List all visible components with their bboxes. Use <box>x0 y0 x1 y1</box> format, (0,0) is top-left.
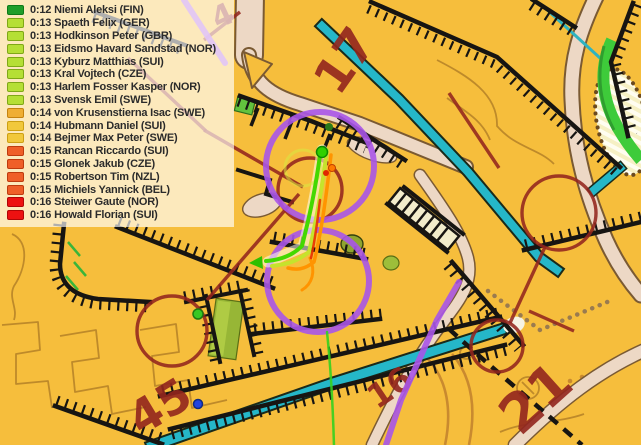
leaderboard-row[interactable]: 0:16 Howald Florian (SUI) <box>0 209 234 222</box>
runner-color-swatch <box>7 44 24 54</box>
runner-label: 0:15 Rancan Riccardo (SUI) <box>30 145 168 157</box>
leaderboard-row[interactable]: 0:16 Steiwer Gaute (NOR) <box>0 196 234 209</box>
runner-color-swatch <box>7 57 24 67</box>
runner-label: 0:14 Hubmann Daniel (SUI) <box>30 120 166 132</box>
runner-color-swatch <box>7 95 24 105</box>
runner-color-swatch <box>7 121 24 131</box>
leaderboard-row[interactable]: 0:14 von Krusenstierna Isac (SWE) <box>0 106 234 119</box>
runner-label: 0:14 von Krusenstierna Isac (SWE) <box>30 107 205 119</box>
runner-label: 0:13 Svensk Emil (SWE) <box>30 94 151 106</box>
leaderboard-row[interactable]: 0:13 Svensk Emil (SWE) <box>0 94 234 107</box>
leaderboard-row[interactable]: 0:15 Robertson Tim (NZL) <box>0 170 234 183</box>
runner-color-swatch <box>7 82 24 92</box>
leaderboard-row[interactable]: 0:13 Kral Vojtech (CZE) <box>0 68 234 81</box>
runner-color-swatch <box>7 108 24 118</box>
leaderboard-row[interactable]: 0:14 Hubmann Daniel (SUI) <box>0 119 234 132</box>
runner-label: 0:16 Howald Florian (SUI) <box>30 209 158 221</box>
gps-replay-viewport[interactable]: 17 45 16 21 4 0:12 Niemi Aleksi (FIN) 0:… <box>0 0 641 445</box>
runner-label: 0:13 Kyburz Matthias (SUI) <box>30 56 164 68</box>
runner-color-swatch <box>7 159 24 169</box>
leaderboard-row[interactable]: 0:13 Harlem Fosser Kasper (NOR) <box>0 81 234 94</box>
runner-label: 0:12 Niemi Aleksi (FIN) <box>30 4 144 16</box>
leaderboard-row[interactable]: 0:13 Eidsmo Havard Sandstad (NOR) <box>0 42 234 55</box>
leaderboard-row[interactable]: 0:13 Kyburz Matthias (SUI) <box>0 55 234 68</box>
runner-color-swatch <box>7 172 24 182</box>
runner-color-swatch <box>7 185 24 195</box>
runner-color-swatch <box>7 69 24 79</box>
runner-label: 0:16 Steiwer Gaute (NOR) <box>30 196 158 208</box>
leaderboard-row[interactable]: 0:15 Michiels Yannick (BEL) <box>0 183 234 196</box>
runner-color-swatch <box>7 5 24 15</box>
runner-color-swatch <box>7 31 24 41</box>
runner-color-swatch <box>7 133 24 143</box>
runner-label: 0:15 Glonek Jakub (CZE) <box>30 158 155 170</box>
runner-dot-blue <box>194 400 203 409</box>
runner-dot-orange <box>329 165 336 172</box>
runner-color-swatch <box>7 197 24 207</box>
runner-label: 0:13 Eidsmo Havard Sandstad (NOR) <box>30 43 216 55</box>
leaderboard-row[interactable]: 0:13 Hodkinson Peter (GBR) <box>0 30 234 43</box>
leaderboard-row[interactable]: 0:14 Bejmer Max Peter (SWE) <box>0 132 234 145</box>
runner-color-swatch <box>7 210 24 220</box>
runner-dot-green <box>317 147 328 158</box>
runner-label: 0:14 Bejmer Max Peter (SWE) <box>30 132 177 144</box>
leaderboard-row[interactable]: 0:12 Niemi Aleksi (FIN) <box>0 4 234 17</box>
runner-dot-green-2 <box>193 309 203 319</box>
leaderboard: 0:12 Niemi Aleksi (FIN) 0:13 Spaeth Feli… <box>0 0 234 227</box>
runner-label: 0:13 Hodkinson Peter (GBR) <box>30 30 172 42</box>
runner-dot-red <box>323 170 329 176</box>
runner-label: 0:13 Harlem Fosser Kasper (NOR) <box>30 81 200 93</box>
runner-label: 0:13 Spaeth Felix (GER) <box>30 17 150 29</box>
leaderboard-row[interactable]: 0:15 Glonek Jakub (CZE) <box>0 158 234 171</box>
leaderboard-row[interactable]: 0:13 Spaeth Felix (GER) <box>0 17 234 30</box>
runner-label: 0:15 Robertson Tim (NZL) <box>30 171 159 183</box>
runner-label: 0:13 Kral Vojtech (CZE) <box>30 68 146 80</box>
runner-color-swatch <box>7 18 24 28</box>
runner-label: 0:15 Michiels Yannick (BEL) <box>30 184 170 196</box>
runner-color-swatch <box>7 146 24 156</box>
leaderboard-row[interactable]: 0:15 Rancan Riccardo (SUI) <box>0 145 234 158</box>
